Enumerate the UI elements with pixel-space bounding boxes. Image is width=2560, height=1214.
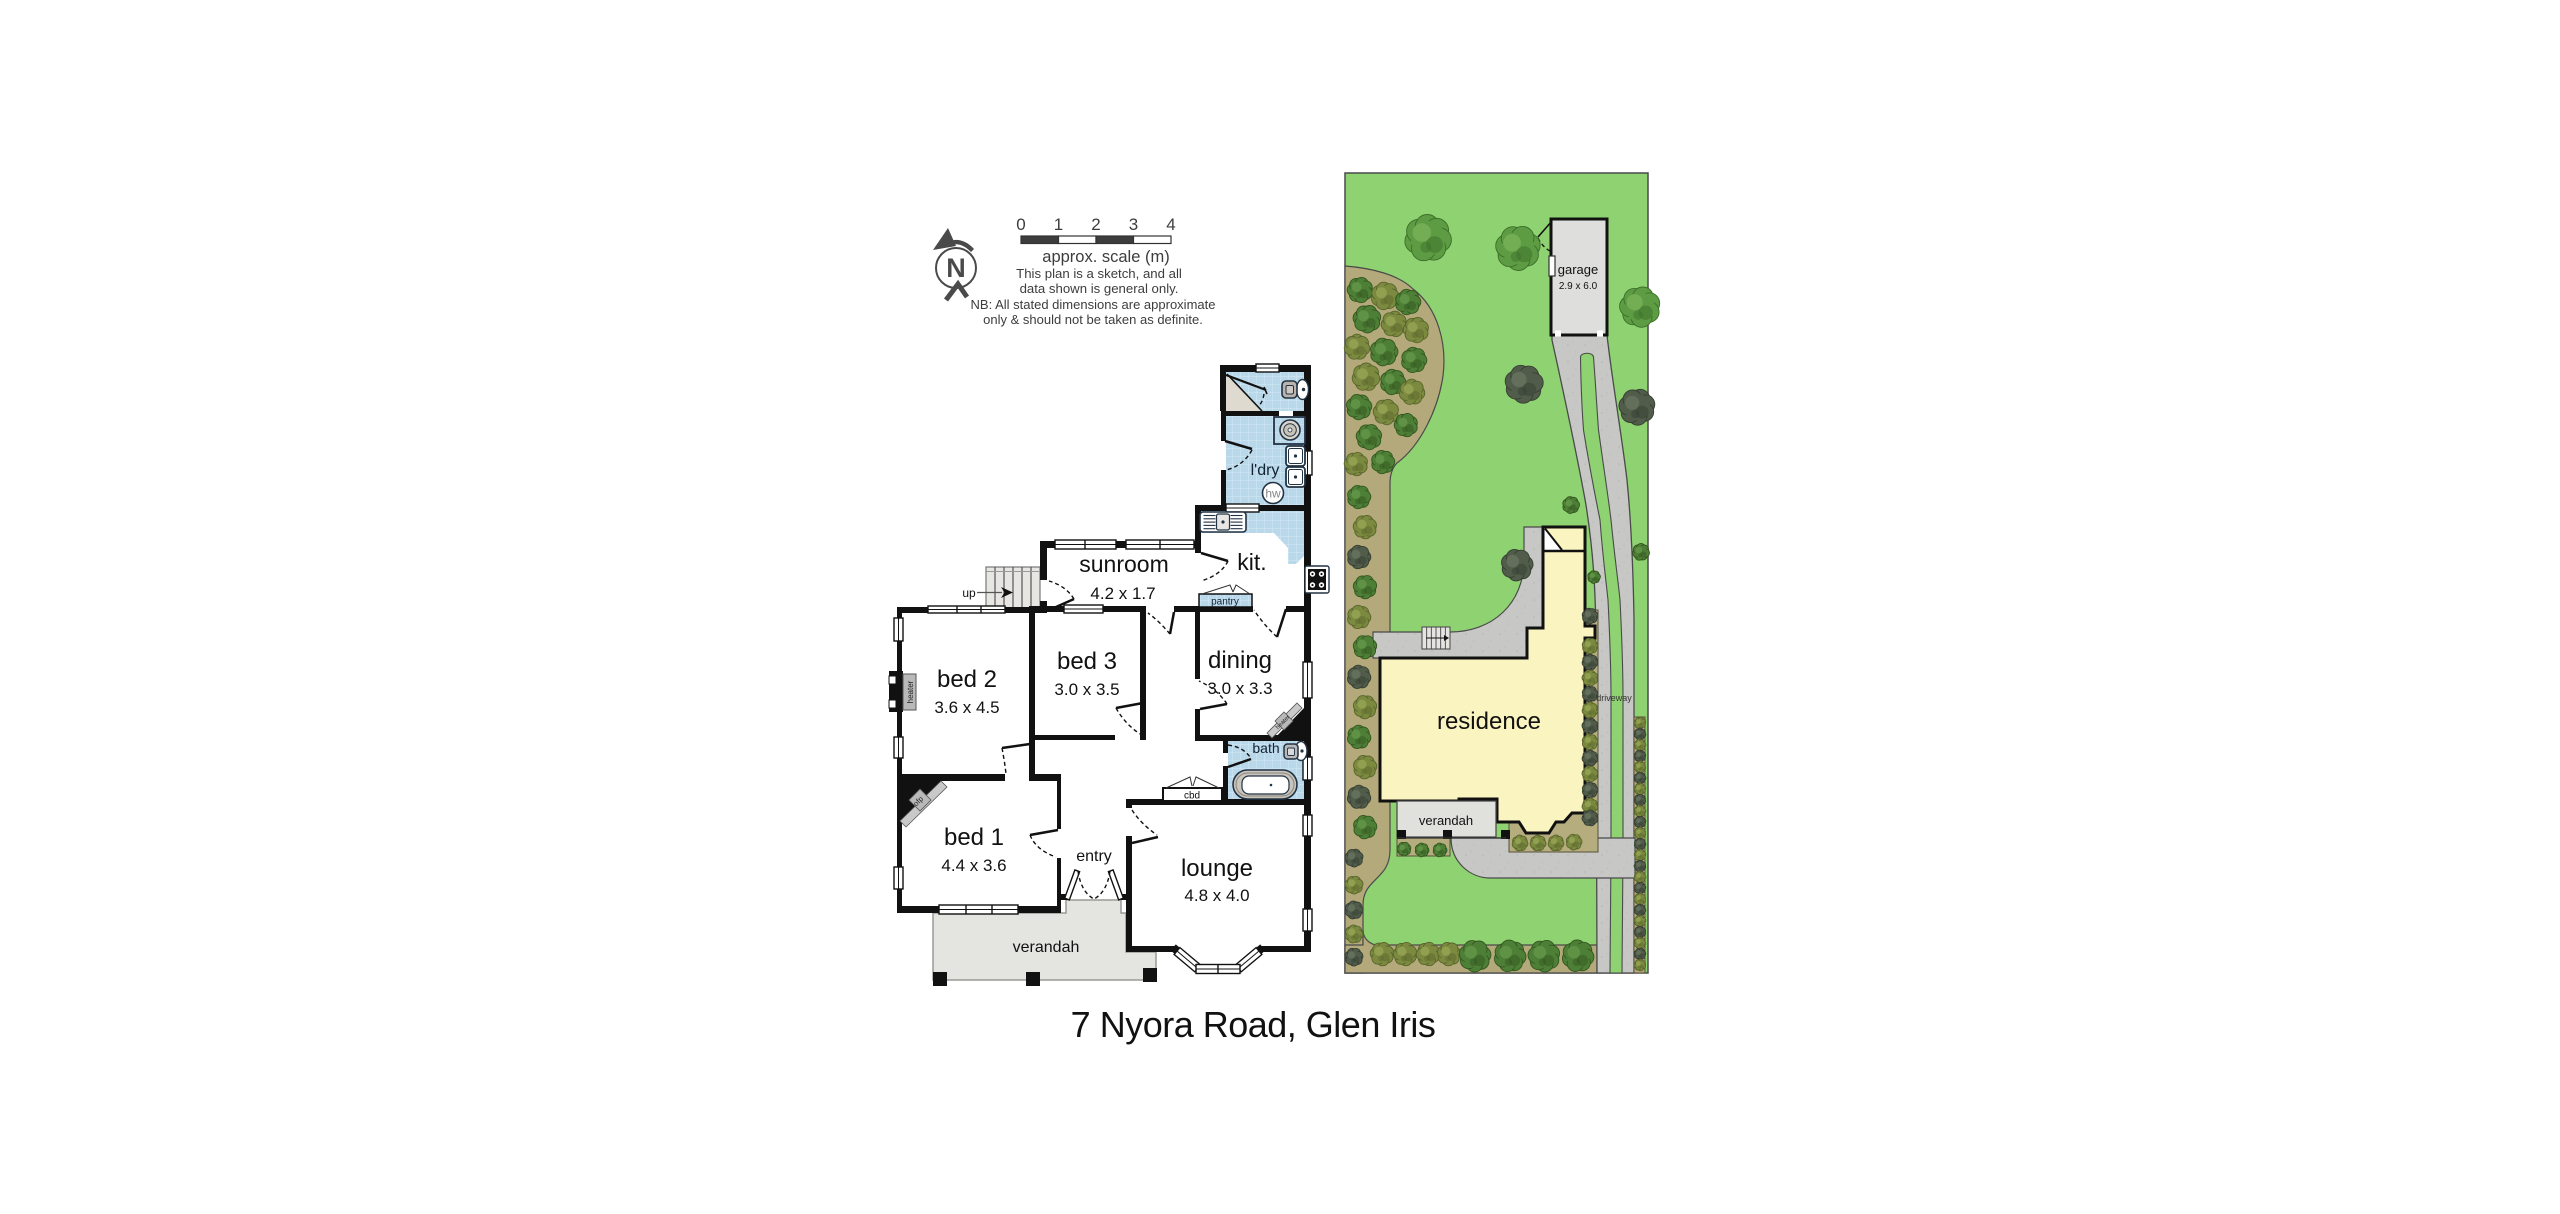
svg-text:3.0 x 3.3: 3.0 x 3.3 [1207, 679, 1272, 698]
svg-text:up: up [962, 586, 976, 600]
svg-text:3: 3 [1129, 215, 1138, 234]
svg-text:bed 1: bed 1 [944, 824, 1004, 851]
svg-text:bed 3: bed 3 [1057, 648, 1117, 675]
svg-text:verandah: verandah [1419, 813, 1473, 828]
svg-text:driveway: driveway [1596, 693, 1632, 703]
svg-text:1: 1 [1054, 215, 1063, 234]
svg-text:garage: garage [1558, 262, 1598, 277]
svg-text:cbd: cbd [1184, 791, 1200, 802]
svg-text:7 Nyora Road, Glen Iris: 7 Nyora Road, Glen Iris [1071, 1004, 1436, 1045]
svg-text:4.2 x 1.7: 4.2 x 1.7 [1090, 584, 1155, 603]
svg-text:hw: hw [1265, 487, 1281, 501]
svg-text:N: N [946, 253, 966, 283]
svg-text:sunroom: sunroom [1079, 551, 1168, 577]
svg-text:bed 2: bed 2 [937, 666, 997, 693]
svg-text:pantry: pantry [1211, 597, 1239, 608]
svg-text:entry: entry [1076, 848, 1112, 865]
svg-text:0: 0 [1016, 215, 1025, 234]
svg-text:only & should not be taken as: only & should not be taken as definite. [983, 312, 1203, 327]
svg-text:NB: All stated dimensions are: NB: All stated dimensions are approximat… [971, 297, 1216, 312]
svg-text:bath: bath [1252, 740, 1279, 756]
svg-text:2: 2 [1091, 215, 1100, 234]
svg-text:4.4 x 3.6: 4.4 x 3.6 [941, 856, 1006, 875]
svg-text:This plan is a sketch, and all: This plan is a sketch, and all [1016, 266, 1182, 281]
svg-text:data shown is general only.: data shown is general only. [1020, 281, 1179, 296]
svg-text:approx. scale (m): approx. scale (m) [1042, 248, 1169, 266]
svg-text:4.8 x 4.0: 4.8 x 4.0 [1184, 886, 1249, 905]
svg-text:3.6 x 4.5: 3.6 x 4.5 [934, 698, 999, 717]
svg-text:2.9 x 6.0: 2.9 x 6.0 [1559, 281, 1598, 292]
svg-text:lounge: lounge [1181, 855, 1253, 882]
svg-text:l'dry: l'dry [1251, 462, 1280, 479]
svg-text:dining: dining [1208, 647, 1272, 674]
svg-text:4: 4 [1166, 215, 1175, 234]
svg-text:heater: heater [906, 680, 915, 703]
svg-text:residence: residence [1437, 708, 1541, 735]
svg-text:kit.: kit. [1237, 549, 1266, 575]
svg-text:3.0 x 3.5: 3.0 x 3.5 [1054, 680, 1119, 699]
svg-text:verandah: verandah [1013, 939, 1080, 956]
